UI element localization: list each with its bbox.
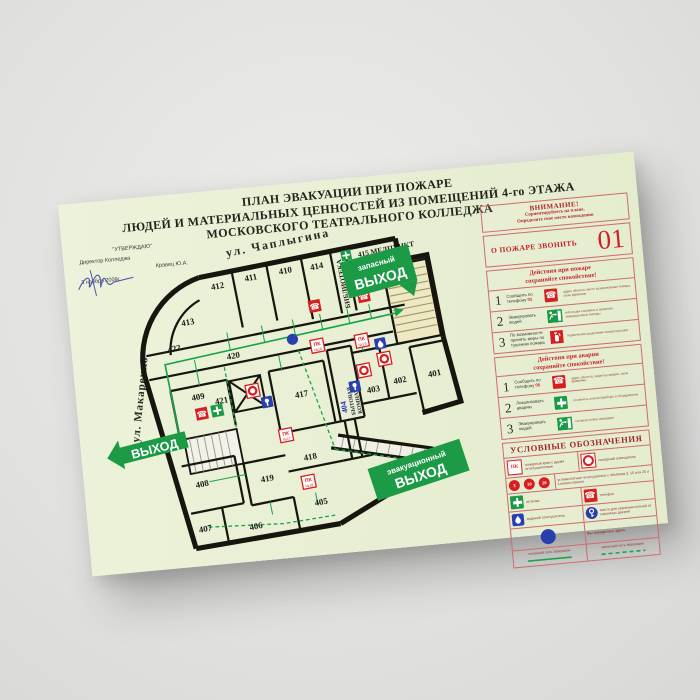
step-number: 3: [503, 421, 517, 435]
pk-icon: ПК №19: [354, 333, 369, 348]
corridor-420: 420: [226, 349, 241, 362]
phone-icon: ☎: [552, 375, 566, 389]
fire-call-label: О ПОЖАРЕ ЗВОНИТЬ: [491, 239, 578, 256]
keys-icon: [585, 507, 598, 520]
exit-sign-left: ВЫХОД: [104, 424, 190, 473]
legend-keys-label: место для хранения ключей от наружных дв…: [600, 503, 654, 517]
pk-icon-label: ПК: [511, 465, 519, 471]
room-422: 422: [167, 342, 182, 355]
room-408: 408: [195, 478, 210, 491]
room-417: 417: [294, 388, 309, 401]
pk-icon: ПК №18: [301, 474, 316, 489]
water-extinguisher-icon: [512, 514, 525, 527]
legend-you-are-here-label: Вы находитесь здесь: [587, 528, 626, 536]
step-accent: 01: [527, 296, 532, 301]
stairs-left: [184, 429, 244, 474]
room-401: 401: [427, 367, 442, 379]
phone-icon: ☎: [195, 407, 209, 421]
room-404-number: 404: [339, 400, 350, 413]
phone-icon: ☎: [544, 288, 558, 302]
step-label-text: По возможности принять меры по тушению п…: [510, 330, 545, 348]
room-407: 407: [198, 522, 213, 535]
step-accent: 05: [535, 383, 540, 388]
fire-detector-icon: [580, 453, 596, 469]
extinguisher-icon: [548, 330, 566, 345]
legend-pk-label: пожарный кран с двумя огнетушителями: [525, 458, 576, 471]
first-aid-icon: [510, 496, 524, 510]
medical-icon: [340, 249, 352, 261]
water-extinguisher-icon: [374, 337, 387, 350]
step-label-text: Эвакуировать людей: [518, 419, 546, 431]
first-aid-icon: [554, 396, 568, 410]
room-414: 414: [309, 260, 324, 273]
room-419: 419: [260, 472, 275, 485]
room-406: 406: [249, 520, 264, 533]
legend-detector-label: пожарный извещатель: [598, 454, 636, 462]
room-405: 405: [314, 495, 329, 508]
room-413: 413: [180, 316, 195, 329]
step-note: используя основные и запасные эвакуацион…: [565, 305, 635, 319]
legend-aid-label: аптечка: [526, 499, 539, 504]
svg-text:☎: ☎: [196, 408, 208, 420]
step-note: адрес объекта, место возникновения пожар…: [563, 284, 633, 298]
room-409: 409: [191, 390, 206, 403]
room-410: 410: [278, 264, 293, 277]
fire-actions-box: Действия при пожаре сохраняйте спокойств…: [486, 257, 641, 354]
step-note: первичными средствами пожаротушения: [567, 328, 637, 338]
step-note: согласно плану эвакуации: [575, 414, 645, 424]
exit-running-man-icon: [556, 416, 574, 431]
street-left-label: ул. Макаренко: [130, 356, 151, 443]
accident-actions-box: Действия при аварии сохраняйте спокойств…: [494, 343, 649, 440]
room-412: 412: [210, 280, 225, 293]
phone-icon: ☎: [583, 489, 597, 503]
step-number: 2: [501, 401, 515, 415]
svg-text:☎: ☎: [309, 300, 321, 312]
pk-icon: ПК №17: [278, 428, 293, 443]
info-sidebar: ВНИМАНИЕ! Сориентируйтесь на плане. Опре…: [480, 192, 658, 534]
step-number: 1: [499, 380, 513, 394]
room-402: 402: [392, 374, 407, 387]
exit-running-man-icon: [546, 309, 564, 324]
step-number: 3: [495, 335, 509, 349]
step-note: отключить электроприборы и оборудование: [573, 393, 643, 403]
legend-water-label: водяной огнетушитель: [527, 514, 565, 522]
you-are-here-icon: [540, 529, 556, 545]
co2-3-icon: 3: [508, 480, 520, 492]
pk-icon: ПК №16: [310, 338, 325, 353]
step-number: 1: [491, 293, 505, 307]
evacuation-plan-poster: ПЛАН ЭВАКУАЦИИ ПРИ ПОЖАРЕ ЛЮДЕЙ И МАТЕРИ…: [58, 152, 668, 577]
pk-icon: ПК: [507, 460, 523, 476]
step-number: 2: [493, 314, 507, 328]
legend-box: УСЛОВНЫЕ ОБОЗНАЧЕНИЯ ПК пожарный кран с …: [502, 430, 661, 568]
floor-plan: ул. Чаплыгина ул. Макаренко: [64, 211, 516, 569]
step-label-text: Эвакуировать людей: [508, 312, 536, 324]
room-411: 411: [244, 271, 258, 283]
fire-call-number: 01: [596, 225, 625, 254]
legend-phone-label: телефон: [599, 492, 614, 498]
room-418: 418: [303, 450, 318, 463]
step-label: Сообщить по телефону 01: [506, 291, 543, 304]
co2-20-icon: 20: [538, 477, 550, 489]
co2-10-icon: 10: [523, 479, 535, 491]
step-label-text: Локализовать аварию: [516, 398, 544, 410]
phone-icon: ☎: [308, 299, 322, 313]
room-403: 403: [366, 383, 381, 396]
step-note: адрес объекта, характер аварии, свою фам…: [571, 370, 641, 384]
first-aid-icon: [210, 403, 224, 417]
